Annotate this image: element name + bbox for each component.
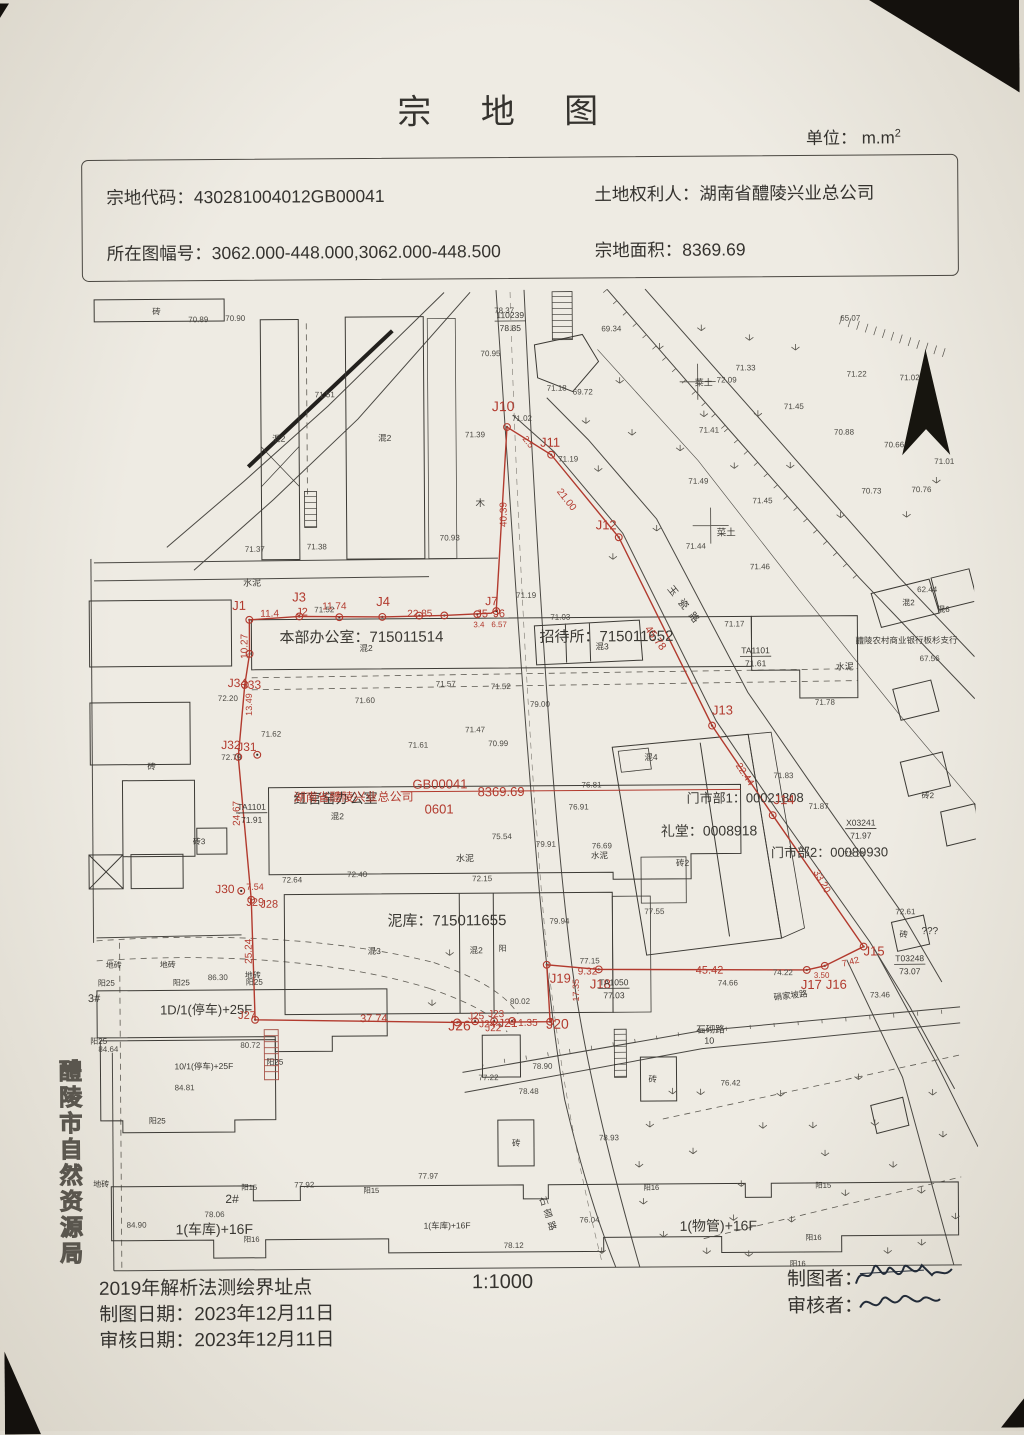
map-label: 混3: [595, 641, 609, 651]
boundary-label: J4: [376, 594, 390, 609]
grass-symbol: [628, 429, 636, 435]
boundary-label: J14: [774, 792, 795, 807]
elevation-label: 80.72: [240, 1041, 261, 1050]
map-label: 砖: [152, 306, 161, 316]
elevation-label: 70.88: [834, 428, 855, 437]
unit-superscript: 2: [895, 128, 901, 140]
elevation-label: 72.15: [472, 874, 493, 883]
area-value: 8369.69: [682, 239, 745, 259]
map-label: 混2: [272, 434, 286, 444]
grass-symbol: [918, 1239, 926, 1245]
boundary-label: J6: [493, 608, 505, 620]
boundary-label: J11: [540, 435, 560, 450]
map-label: 砖3: [193, 836, 206, 846]
boundary-label: J15: [864, 943, 885, 958]
elevation-label: 71.39: [465, 430, 486, 439]
grass-symbol: [929, 1089, 937, 1095]
grass-symbol: [609, 553, 617, 559]
elevation-label: 71.02: [900, 373, 921, 382]
elevation-label: 76.91: [569, 802, 590, 811]
elevation-label: 77.22: [478, 1073, 499, 1082]
staircase-steps: [552, 297, 572, 339]
map-label: 10: [704, 1036, 714, 1046]
boundary-label: 21.00: [554, 487, 578, 514]
map-label: 地砖: [106, 960, 122, 970]
elevation-label: 70.73: [861, 486, 882, 495]
elevation-label: 72.61: [895, 907, 916, 916]
map-label: 门市部2：00089930: [771, 844, 888, 860]
grass-symbol: [676, 445, 684, 451]
grass-symbol: [653, 525, 661, 531]
elevation-label: 79.94: [549, 917, 570, 926]
map-label: 菜土: [717, 526, 737, 538]
map-label: 水泥: [836, 661, 854, 672]
grass-symbol: [809, 1122, 817, 1128]
grass-symbol: [759, 1122, 767, 1128]
owner-label: 土地权利人：: [594, 184, 699, 205]
boundary-label: J19: [550, 971, 571, 986]
map-label: 石砌路: [537, 1195, 560, 1235]
grass-symbol: [635, 1161, 643, 1167]
map-label: 混2: [359, 643, 373, 653]
elevation-label: 71.61: [408, 741, 429, 750]
map-label: 混2: [331, 811, 345, 821]
grass-symbol: [428, 1000, 436, 1006]
elevation-label: 71.83: [773, 771, 794, 780]
elevation-label: 71.19: [516, 591, 537, 600]
map-label: 泥库：715011655: [387, 912, 506, 930]
map-label: 水泥: [243, 577, 261, 588]
boundary-label: J31: [237, 740, 257, 754]
grass-symbol: [821, 1150, 829, 1156]
grass-symbol: [594, 465, 602, 471]
grass-symbol: [660, 1231, 668, 1237]
map-sheet-field: 所在图幅号：3062.000-448.000,3062.000-448.500: [107, 238, 501, 266]
control-point-id: X03241: [846, 817, 876, 827]
area-label: 宗地面积：: [595, 240, 683, 261]
map-label: 混6: [937, 605, 950, 614]
boundary-label: 7.54: [246, 882, 264, 892]
elevation-label: 84.90: [127, 1221, 148, 1230]
elevation-label: 70.66: [884, 440, 905, 449]
elevation-label: 71.46: [750, 562, 771, 571]
map-label: 菜土: [695, 377, 713, 388]
elevation-label: 84.64: [98, 1045, 119, 1054]
boundary-label: 湖南省醴陵兴业总公司: [294, 789, 414, 805]
boundary-label: J7: [485, 594, 498, 608]
grass-symbol: [598, 1247, 606, 1253]
parcel-code-value: 430281004012GB00041: [194, 186, 385, 207]
parcel-code-field: 宗地代码：430281004012GB00041: [106, 183, 384, 210]
elevation-label: 71.37: [245, 545, 266, 554]
map-label: 砖: [512, 1138, 521, 1148]
grass-symbol: [917, 1187, 925, 1193]
elevation-label: 71.87: [809, 802, 830, 811]
grass-symbol: [884, 1247, 892, 1253]
elevation-label: 62.44: [917, 585, 938, 594]
owner-value: 湖南省醴陵兴业总公司: [699, 182, 874, 203]
elevation-label: 70.93: [440, 533, 461, 542]
map-label: 水泥: [456, 852, 474, 863]
boundary-label: J26: [448, 1017, 471, 1033]
boundary-label: 17.35: [571, 979, 581, 1002]
map-label: 阳16: [806, 1233, 822, 1242]
map-label: 阳15: [363, 1186, 379, 1195]
draft-date-field: 制图日期：2023年12月11日: [99, 1298, 334, 1327]
survey-method-note: 2019年解析法测绘界址点: [99, 1272, 312, 1300]
elevation-label: 86.30: [208, 973, 229, 982]
review-date-field: 审核日期：2023年12月11日: [99, 1324, 334, 1353]
elevation-label: 71.45: [784, 402, 805, 411]
grass-symbol: [871, 1119, 879, 1125]
map-label: 砖: [147, 761, 156, 771]
reviewer-signature: [856, 1287, 946, 1320]
elevation-label: 72.79: [221, 753, 242, 762]
boundary-point-center: [256, 754, 258, 756]
map-label: 阳: [499, 944, 507, 953]
map-label: 1(物管)+16F: [680, 1217, 758, 1234]
boundary-point-center: [240, 890, 242, 892]
elevation-label: 78.48: [519, 1087, 540, 1096]
control-point-elevation: 71.97: [850, 830, 872, 840]
staircase-steps: [614, 1034, 626, 1076]
boundary-label: 6.57: [491, 620, 507, 629]
elevation-label: 71.38: [307, 542, 328, 551]
grass-symbol: [616, 377, 624, 383]
map-label: 阳25: [149, 1116, 167, 1125]
review-date-label: 审核日期：: [99, 1330, 194, 1352]
map-label: 阳15: [241, 1183, 257, 1192]
boundary-label: J22: [485, 1023, 502, 1034]
grass-symbol: [939, 1131, 947, 1137]
elevation-label: 71.45: [752, 496, 773, 505]
grass-symbol: [639, 1198, 647, 1204]
grass-symbol: [689, 1148, 697, 1154]
elevation-label: 78.93: [599, 1133, 620, 1142]
elevation-label: 69.72: [573, 387, 594, 396]
elevation-label: 71.60: [355, 696, 376, 705]
elevation-label: 73.46: [870, 990, 891, 999]
map-label: 玉瓷路: [665, 583, 707, 631]
boundary-label: 3.4: [473, 620, 485, 629]
control-point-id: TA1050: [599, 977, 628, 987]
elevation-label: 77.15: [580, 956, 601, 965]
grass-symbol: [697, 325, 705, 331]
boundary-label: GB00041: [412, 776, 467, 791]
boundary-label: J23: [488, 1009, 505, 1020]
elevation-label: 72.09: [717, 375, 738, 384]
map-label: 醴陵农村商业银行板杉支行: [855, 635, 958, 646]
elevation-label: 84.81: [175, 1083, 196, 1092]
elevation-label: 71.57: [436, 679, 457, 688]
cadastral-map-canvas: 本部办公室：715011514招待所：715011652红官窑办公室泥库：715…: [77, 282, 979, 1273]
control-point-id: T03248: [895, 953, 924, 963]
elevation-label: 71.17: [724, 619, 745, 628]
info-row-2: 所在图幅号：3062.000-448.000,3062.000-448.500 …: [83, 235, 958, 241]
elevation-label: 75.54: [492, 832, 513, 841]
elevation-label: 70.95: [480, 349, 501, 358]
elevation-label: 71.52: [491, 682, 512, 691]
boundary-label: 37.74: [360, 1013, 388, 1025]
elevation-label: 71.22: [847, 370, 868, 379]
map-label: 阳16: [643, 1183, 659, 1192]
boundary-label: J17: [801, 977, 822, 992]
elevation-label: 76.81: [581, 780, 602, 789]
elevation-label: 71.62: [261, 730, 282, 739]
control-point-id: 110239: [496, 310, 524, 320]
map-label: 3#: [88, 993, 101, 1005]
map-label: 砖2: [676, 858, 690, 868]
map-label: 1(车库)+16F: [424, 1220, 471, 1230]
elevation-label: 71.19: [558, 455, 579, 464]
boundary-label: J3: [292, 589, 306, 604]
grass-symbol: [841, 1190, 849, 1196]
grass-symbol: [697, 1089, 705, 1095]
grass-symbol: [703, 1248, 711, 1254]
grass-symbol: [786, 462, 794, 468]
elevation-label: 79.00: [530, 700, 551, 709]
map-label: 阳25: [173, 978, 191, 987]
elevation-label: 71.03: [550, 613, 571, 622]
elevation-label: 74.66: [718, 978, 739, 987]
elevation-label: 70.99: [488, 739, 509, 748]
grass-symbol: [730, 462, 738, 468]
area-field: 宗地面积：8369.69: [595, 236, 746, 262]
boundary-label: J33: [242, 678, 262, 692]
staircase-steps: [304, 496, 316, 526]
elevation-label: 70.90: [225, 314, 246, 323]
map-label: 混3: [368, 946, 382, 956]
parcel-info-box: 宗地代码：430281004012GB00041 土地权利人：湖南省醴陵兴业总公…: [81, 154, 959, 282]
boundary-label: 25.24: [244, 938, 255, 964]
hatch-ticks: [724, 428, 857, 580]
map-label: 10/1(停车)+25F: [174, 1061, 233, 1071]
map-label: 混2: [378, 433, 392, 443]
map-label: 阳15: [815, 1181, 831, 1190]
unit-text: 单位： m.m: [806, 128, 895, 148]
control-point-elevation: 73.07: [899, 966, 921, 976]
map-label: 地砖: [93, 1179, 109, 1189]
boundary-label: J27: [238, 1010, 256, 1022]
elevation-label: 72.20: [218, 694, 239, 703]
elevation-label: 70.89: [188, 315, 209, 324]
elevation-label: 71.18: [547, 384, 568, 393]
map-label: 木: [475, 497, 485, 509]
control-point-id: TA1101: [741, 645, 770, 655]
parcel-code-label: 宗地代码：: [106, 187, 194, 208]
grass-symbol: [646, 1121, 654, 1127]
boundary-label: 0601: [425, 801, 454, 816]
control-point-id: TA1101: [237, 802, 266, 812]
boundary-label: 45.42: [696, 965, 724, 977]
boundary-label: J28: [260, 899, 278, 911]
boundary-label: J20: [546, 1016, 569, 1032]
grass-symbol: [932, 477, 940, 483]
elevation-label: 71.52: [314, 605, 335, 614]
elevation-label: 71.41: [699, 426, 720, 435]
grass-symbol: [889, 1161, 897, 1167]
boundary-label: J12: [596, 517, 617, 532]
grass-symbol: [446, 949, 454, 955]
map-label: 水泥: [591, 850, 609, 860]
info-row-1: 宗地代码：430281004012GB00041 土地权利人：湖南省醴陵兴业总公…: [82, 179, 957, 185]
unit-label: 单位： m.m2: [806, 123, 901, 149]
boundary-label: J30: [215, 882, 235, 896]
elevation-label: 77.55: [644, 907, 665, 916]
map-label: 阳25: [246, 978, 264, 987]
elevation-label: 71.02: [512, 414, 533, 423]
boundary-label: 11.4: [260, 609, 279, 620]
boundary-label: 13.49: [244, 693, 254, 716]
boundary-label: J1: [232, 598, 246, 613]
grass-symbol: [745, 1250, 753, 1256]
grass-symbol: [903, 511, 911, 517]
elevation-label: 71.78: [815, 698, 836, 707]
boundary-label: 22.85: [407, 609, 433, 620]
grass-symbol: [582, 417, 590, 423]
elevation-label: 80.02: [510, 997, 531, 1006]
map-label: 阳25: [98, 979, 116, 988]
map-label: 地砖: [160, 959, 176, 969]
map-sheet-value: 3062.000-448.000,3062.000-448.500: [212, 241, 501, 263]
boundary-label: 10.27: [239, 633, 250, 659]
elevation-label: 71.47: [465, 725, 486, 734]
elevation-label: 71.33: [736, 363, 757, 372]
map-label: 礼堂：0008918: [661, 822, 758, 839]
elevation-label: 76.69: [592, 841, 613, 850]
elevation-label: 65.07: [840, 314, 861, 323]
draft-date-label: 制图日期：: [99, 1304, 194, 1326]
boundary-label: J10: [492, 398, 515, 414]
elevation-label: 78.12: [504, 1241, 525, 1250]
control-point-elevation: 71.61: [745, 658, 767, 668]
elevation-label: 71.01: [934, 457, 955, 466]
control-point-elevation: 71.91: [241, 815, 263, 825]
agency-side-label: 醴陵市自然资源局: [50, 1059, 86, 1289]
boundary-label: 8369.69: [477, 784, 524, 799]
map-label: 砖: [649, 1074, 658, 1084]
map-label: 砖: [900, 929, 909, 939]
north-arrow: [901, 349, 950, 455]
elevation-label: 72.64: [282, 875, 303, 884]
boundary-label: J16: [826, 977, 847, 992]
map-label: 1(车库)+16F: [176, 1221, 254, 1238]
grass-symbol: [745, 334, 753, 340]
map-scale: 1:1000: [472, 1271, 533, 1294]
control-point-elevation: 78.85: [500, 323, 522, 333]
map-label: 阳16: [244, 1235, 260, 1244]
boundary-label: 1.35: [518, 1018, 538, 1029]
elevation-label: 76.42: [721, 1078, 742, 1087]
grass-symbol: [791, 344, 799, 350]
boundary-label: J5: [476, 608, 488, 620]
elevation-label: 67.56: [920, 654, 941, 663]
control-point-elevation: 77.03: [603, 990, 625, 1000]
elevation-label: 77.92: [294, 1180, 315, 1189]
map-label: 混4: [644, 752, 658, 762]
reviewer-field: 审核者：: [787, 1291, 863, 1319]
elevation-label: 76.04: [579, 1215, 600, 1224]
elevation-label: 72.16: [844, 850, 865, 859]
elevation-label: 71.44: [686, 542, 707, 551]
elevation-label: 71.51: [315, 390, 336, 399]
elevation-label: 74.22: [773, 968, 794, 977]
elevation-label: 77.97: [418, 1172, 439, 1181]
elevation-label: 78.06: [204, 1210, 225, 1219]
elevation-label: 78.90: [532, 1062, 553, 1071]
elevation-label: 70.76: [911, 485, 932, 494]
map-label: 混2: [902, 598, 915, 607]
boundary-label: 33.20: [810, 868, 832, 896]
grass-symbol: [700, 411, 708, 417]
map-labels-layer: 本部办公室：715011514招待所：715011652红官窑办公室泥库：715…: [83, 301, 962, 1273]
grass-symbol: [669, 1088, 677, 1094]
elevation-label: 71.49: [688, 477, 709, 486]
map-sheet-label: 所在图幅号：: [107, 243, 212, 264]
map-label: 阳25: [266, 1058, 284, 1067]
boundary-label: J2: [296, 606, 308, 618]
map-label: 石砌路: [696, 1024, 725, 1036]
boundary-label: 9.32: [578, 966, 598, 977]
owner-field: 土地权利人：湖南省醴陵兴业总公司: [594, 179, 874, 206]
boundary-label: J13: [712, 702, 733, 717]
elevation-label: 72.40: [347, 870, 368, 879]
elevation-label: 69.34: [601, 324, 622, 333]
scanned-parcel-map-page: 宗 地 图 单位： m.m2 宗地代码：430281004012GB00041 …: [0, 0, 1024, 1435]
staircase-symbol: [304, 491, 316, 527]
boundary-label: 40.39: [499, 502, 510, 528]
map-label: 砖2: [922, 790, 935, 800]
map-label: 混2: [470, 945, 484, 955]
draft-date-value: 2023年12月11日: [194, 1303, 334, 1325]
reviewer-label: 审核者：: [787, 1296, 863, 1318]
map-label: 2#: [225, 1192, 239, 1206]
hatch-ticks: [702, 1010, 942, 1033]
map-label: ???: [921, 926, 938, 937]
review-date-value: 2023年12月11日: [194, 1329, 334, 1351]
elevation-label: 79.91: [536, 840, 557, 849]
